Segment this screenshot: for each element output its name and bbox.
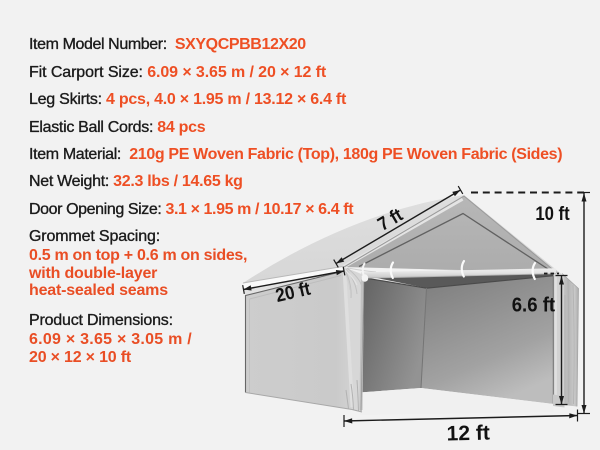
svg-text:12 ft: 12 ft bbox=[446, 422, 490, 446]
svg-text:10 ft: 10 ft bbox=[535, 203, 569, 224]
svg-text:6.6 ft: 6.6 ft bbox=[512, 295, 556, 317]
